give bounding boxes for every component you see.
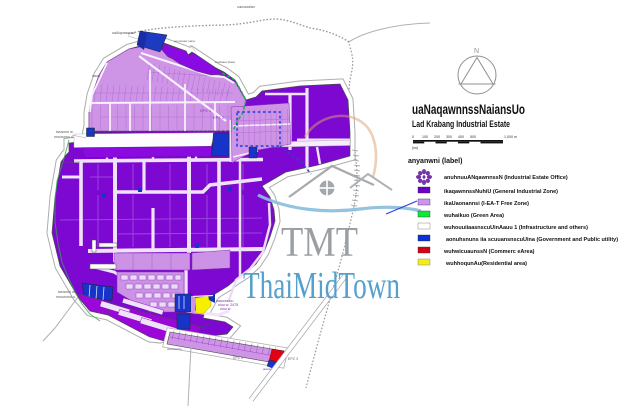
svg-text:ikaqawnnssNuhiU (General Indus: ikaqawnnssNuhiU (General Industrial Zone… [444, 189, 558, 195]
svg-text:uaNaqawnnssNaiansUo: uaNaqawnnssNaiansUo [412, 101, 525, 117]
svg-text:onuussnno: onuussnno [167, 347, 182, 351]
svg-text:nnuosnnu u.: nnuosnnu u. [56, 295, 76, 299]
svg-text:EPZ 1: EPZ 1 [200, 108, 212, 113]
svg-text:200: 200 [434, 135, 440, 139]
svg-text:wuhouuiiaasnscuUinAauu 1 (Infr: wuhouuiiaasnscuUinAauu 1 (Infrastructure… [443, 225, 588, 231]
svg-text:anuhnuuANqawnnssN (Industrial: anuhnuuANqawnnssN (Industrial Estate Off… [444, 175, 568, 181]
svg-text:wuhwicuaunssN (Commerc eArea): wuhwicuaunssN (Commerc eArea) [443, 249, 535, 255]
svg-text:100: 100 [422, 135, 428, 139]
svg-text:500: 500 [470, 135, 476, 139]
svg-text:uiuu w.: uiuu w. [220, 307, 231, 311]
svg-text:ikaUaonannsi (I-EA-T Free Zone: ikaUaonannsi (I-EA-T Free Zone) [444, 201, 529, 207]
svg-text:TMT: TMT [281, 220, 358, 266]
svg-text:ouuaaoonso: ouuaaoonso [63, 160, 80, 164]
svg-text:anyanwni (label): anyanwni (label) [408, 158, 462, 165]
svg-text:aiansz: aiansz [263, 367, 272, 371]
svg-text:naoo: naoo [92, 74, 100, 78]
svg-text:nnuosnnu u.: nnuosnnu u. [54, 135, 74, 139]
svg-text:iwusnnn w.: iwusnnn w. [56, 130, 74, 134]
svg-text:EPZ 2: EPZ 2 [213, 115, 225, 120]
svg-text:(im): (im) [412, 146, 418, 150]
svg-text:400: 400 [458, 135, 464, 139]
svg-text:0: 0 [412, 135, 414, 139]
svg-text:iwusnnn w.: iwusnnn w. [58, 290, 76, 294]
svg-text:aonuisoiw uana.: aonuisoiw uana. [174, 39, 196, 43]
svg-text:wuhaikuo (Green Area): wuhaikuo (Green Area) [443, 213, 504, 219]
svg-text:300: 300 [446, 135, 452, 139]
svg-text:ThaiMidTown: ThaiMidTown [243, 265, 400, 307]
svg-text:wuhhoqunAu(Residential area): wuhhoqunAu(Residential area) [445, 261, 527, 267]
svg-text:uaiUqnasnsao: uaiUqnasnsao [112, 31, 135, 35]
svg-text:iiuuikaua (ikas): iiuuikaua (ikas) [215, 60, 235, 64]
svg-text:EPZ 3: EPZ 3 [288, 357, 298, 361]
svg-text:ouunaooiiwo: ouunaooiiwo [237, 5, 255, 9]
svg-text:aonuhsnuns iia scuuansnscuUina: aonuhsnuns iia scuuansnscuUina (Governme… [446, 237, 618, 243]
svg-text:EPZ 3: EPZ 3 [233, 356, 243, 360]
svg-text:Lad Krabang Industrial Estate: Lad Krabang Industrial Estate [412, 119, 510, 130]
svg-text:1,000 m: 1,000 m [504, 135, 517, 139]
svg-text:N: N [474, 48, 479, 55]
